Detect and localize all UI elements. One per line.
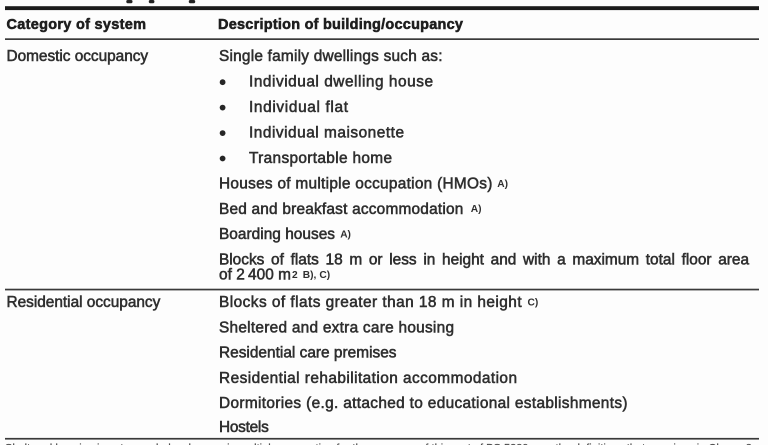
svg-text:Houses of multiple occupation: Houses of multiple occupation (HMOs) xyxy=(219,176,492,193)
svg-text:Transportable home: Transportable home xyxy=(249,150,392,167)
svg-text:Residential rehabilitation acc: Residential rehabilitation accommodation xyxy=(219,370,517,387)
svg-text:A): A) xyxy=(471,204,482,215)
svg-text:Residential care premises: Residential care premises xyxy=(219,345,397,362)
svg-text:Dormitories (e.g. attached to: Dormitories (e.g. attached to educationa… xyxy=(219,395,628,412)
svg-text:Individual flat: Individual flat xyxy=(249,99,349,116)
svg-text:Individual maisonette: Individual maisonette xyxy=(249,125,404,142)
svg-text:Bed and breakfast accommodatio: Bed and breakfast accommodation xyxy=(219,201,463,218)
svg-text:B),: B), xyxy=(303,270,317,281)
svg-text:Boarding houses: Boarding houses xyxy=(219,226,335,243)
svg-text:Residential occupancy: Residential occupancy xyxy=(7,294,161,311)
svg-text:of 2 400 m: of 2 400 m xyxy=(219,267,291,284)
svg-text:Single family dwellings such a: Single family dwellings such as: xyxy=(219,48,443,65)
svg-text:A): A) xyxy=(340,229,351,240)
svg-text:2: 2 xyxy=(292,270,298,281)
svg-text:Domestic occupancy: Domestic occupancy xyxy=(7,48,149,65)
svg-text:C): C) xyxy=(528,297,539,308)
svg-text:C): C) xyxy=(319,270,330,281)
svg-text:A): A) xyxy=(497,179,508,190)
svg-text:Blocks of flats 18 m or less i: Blocks of flats 18 m or less in height a… xyxy=(219,252,749,269)
svg-text:Category of system: Category of system xyxy=(7,17,147,33)
svg-text:Individual dwelling house: Individual dwelling house xyxy=(249,74,433,91)
svg-text:Description of building/occupa: Description of building/occupancy xyxy=(218,17,463,33)
svg-text:Blocks of flats greater than 1: Blocks of flats greater than 18 m in hei… xyxy=(219,294,522,311)
svg-text:Sheltered and extra care housi: Sheltered and extra care housing xyxy=(219,319,454,336)
svg-text:Hostels: Hostels xyxy=(219,419,269,436)
